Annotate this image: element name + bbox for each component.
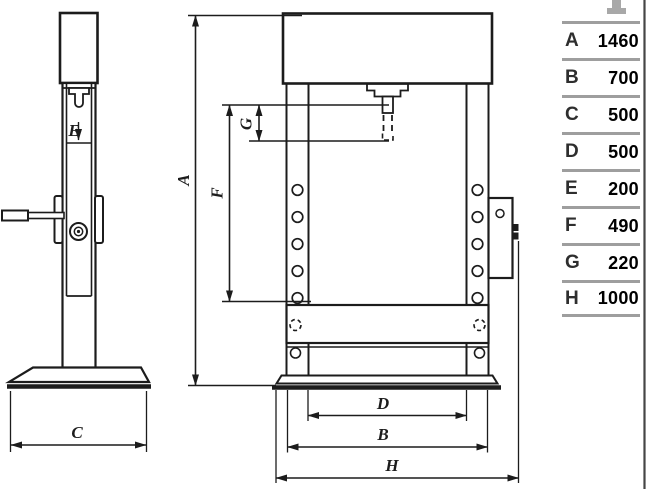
dim-value: 490 bbox=[608, 216, 639, 237]
dim-value: 1460 bbox=[598, 31, 639, 52]
front-base bbox=[277, 376, 498, 384]
dim-letter: F bbox=[565, 215, 577, 237]
pump-handle-grip bbox=[2, 211, 28, 221]
dim-letter: C bbox=[565, 104, 579, 126]
dim-letter: G bbox=[565, 252, 580, 274]
handle-socket bbox=[513, 233, 519, 240]
column-hole bbox=[472, 293, 483, 304]
dim-value: 500 bbox=[608, 105, 639, 126]
dim-value: 1000 bbox=[598, 288, 639, 309]
handle-socket bbox=[513, 224, 519, 231]
side-bracket-right bbox=[95, 196, 103, 243]
dim-label-F: F bbox=[208, 187, 227, 200]
column-hole bbox=[291, 348, 301, 358]
work-table bbox=[287, 305, 489, 343]
dim-letter: E bbox=[565, 178, 578, 200]
column-hole bbox=[292, 239, 303, 250]
top-beam bbox=[283, 14, 492, 84]
pump-handle-shaft bbox=[28, 213, 64, 219]
side-cylinder bbox=[60, 13, 98, 83]
dim-value: 200 bbox=[608, 179, 639, 200]
ram-flange bbox=[367, 84, 408, 97]
dim-letter: B bbox=[565, 67, 579, 89]
dim-label-E: E bbox=[67, 121, 79, 140]
column-hole bbox=[292, 185, 303, 196]
table-row: H 1000 bbox=[562, 280, 640, 317]
column-hole bbox=[292, 266, 303, 277]
dim-value: 220 bbox=[608, 253, 639, 274]
ram-extended-end-dashed bbox=[383, 134, 394, 141]
table-row: G 220 bbox=[562, 243, 640, 280]
table-row: D 500 bbox=[562, 132, 640, 169]
column-hole bbox=[472, 212, 483, 223]
column-hole bbox=[472, 239, 483, 250]
table-row: A 1460 bbox=[562, 21, 640, 58]
dim-label-B: B bbox=[376, 425, 388, 444]
spec-table: A 1460 B 700 C 500 D 500 E 200 F 490 G 2… bbox=[562, 21, 640, 317]
technical-drawing: A F G E C D B H bbox=[0, 0, 648, 489]
column-hole bbox=[475, 348, 485, 358]
dim-label-D: D bbox=[376, 394, 389, 413]
dim-letter: D bbox=[565, 141, 579, 163]
dim-value: 500 bbox=[608, 142, 639, 163]
dimension-labels: A F G E C D B H bbox=[67, 117, 399, 475]
column-hole bbox=[472, 266, 483, 277]
dim-letter: A bbox=[565, 30, 579, 52]
dim-letter: H bbox=[565, 288, 579, 310]
table-row: E 200 bbox=[562, 169, 640, 206]
front-view bbox=[272, 14, 519, 388]
column-holes bbox=[292, 185, 483, 304]
dim-label-G: G bbox=[237, 117, 256, 130]
table-row: F 490 bbox=[562, 206, 640, 243]
column-hole bbox=[292, 212, 303, 223]
side-base-foot bbox=[9, 368, 149, 383]
table-row: B 700 bbox=[562, 58, 640, 95]
side-view bbox=[2, 13, 151, 387]
side-bracket-left bbox=[55, 196, 63, 243]
cropped-table-artifact bbox=[607, 0, 626, 14]
dim-label-A: A bbox=[174, 174, 193, 186]
dim-value: 700 bbox=[608, 68, 639, 89]
column-hole bbox=[472, 185, 483, 196]
dim-label-H: H bbox=[384, 456, 399, 475]
dim-label-C: C bbox=[71, 423, 83, 442]
table-row: C 500 bbox=[562, 95, 640, 132]
pivot-bolt-center bbox=[77, 230, 80, 233]
